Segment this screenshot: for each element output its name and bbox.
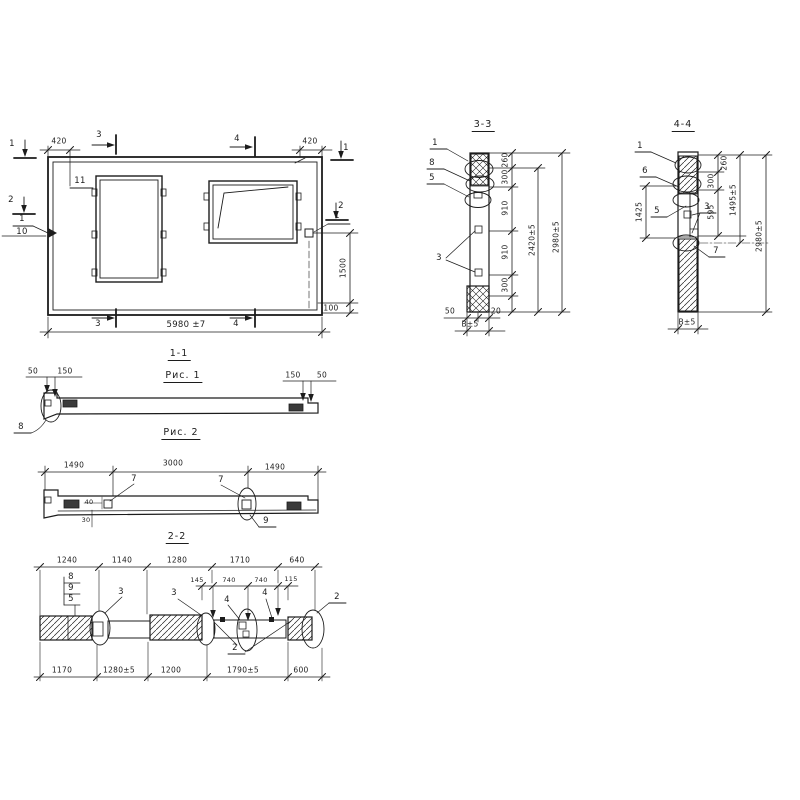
- f2-dim-1490-right: 1490: [265, 463, 285, 471]
- s33-dim-910-top: 910: [501, 200, 509, 215]
- s22-top-dim-1710: 1710: [230, 556, 250, 564]
- s11-dim-50-left: 50: [28, 367, 38, 375]
- f2-dim-40: 40: [85, 499, 94, 506]
- s22-label-4-right: 4: [262, 589, 268, 598]
- s44-dim-1495: 1495±5: [729, 184, 737, 216]
- section-1-1-view: [14, 377, 336, 433]
- s22-label-4-left: 4: [224, 596, 230, 605]
- dim-420-left: 420: [51, 137, 66, 145]
- s22-mid-dim-115: 115: [284, 576, 297, 583]
- s22-label-3-right: 3: [171, 589, 177, 598]
- s11-dim-150-right: 150: [285, 371, 300, 379]
- s11-dim-150-left: 150: [57, 367, 72, 375]
- s33-dim-300-bottom: 300: [501, 277, 509, 292]
- s22-mid-dim-145: 145: [190, 577, 203, 584]
- f2-label-7-right: 7: [218, 476, 224, 485]
- dim-overall-width: 5980 ±7: [167, 321, 206, 330]
- s22-top-dim-1280: 1280: [167, 556, 187, 564]
- s33-label-8: 8: [429, 159, 435, 168]
- s22-label-2-bottom: 2: [232, 644, 238, 653]
- section-1-1-title: 1-1: [168, 349, 191, 361]
- label-1-right: 1: [334, 212, 340, 221]
- figure-2-caption: Рис. 2: [161, 428, 200, 440]
- section-4-4-title: 4-4: [672, 120, 695, 132]
- label-1-numerator: 1: [19, 215, 25, 224]
- s22-mid-dim-740a: 740: [222, 577, 235, 584]
- section-marker-3-bottom: 3: [95, 320, 101, 329]
- s22-label-9: 9: [68, 584, 74, 593]
- dim-420-right: 420: [302, 137, 317, 145]
- s22-bottom-dim-1200: 1200: [161, 666, 181, 674]
- label-10-denominator: 10: [16, 228, 27, 237]
- label-11: 11: [74, 177, 85, 186]
- s44-dim-thickness: В±5: [678, 318, 695, 326]
- s44-dim-260: 260: [720, 155, 728, 170]
- s44-dim-1425: 1425: [635, 202, 643, 222]
- section-marker-3-top: 3: [96, 131, 102, 140]
- s22-bottom-dim-600: 600: [293, 666, 308, 674]
- s44-label-7: 7: [713, 247, 719, 256]
- dim-1500: 1500: [339, 258, 347, 278]
- s33-dim-2980: 2980±5: [552, 221, 560, 253]
- s33-dim-910-bottom: 910: [501, 244, 509, 259]
- s22-label-2-right: 2: [334, 593, 340, 602]
- s44-dim-300: 300: [707, 173, 715, 188]
- section-marker-2-right: 2: [338, 202, 344, 211]
- s22-top-dim-1140: 1140: [112, 556, 132, 564]
- s33-label-3: 3: [436, 254, 442, 263]
- s22-top-dim-640: 640: [289, 556, 304, 564]
- s22-bottom-dim-1280: 1280±5: [103, 666, 135, 674]
- s33-dim-300-top: 300: [501, 169, 509, 184]
- s44-dim-595: 595: [707, 204, 715, 219]
- s33-label-1: 1: [432, 139, 438, 148]
- drawing-sheet: 420 11 1 2 1 10 3 4 420 1 2 1 1500 100 5…: [0, 0, 800, 800]
- s22-bottom-dim-1170: 1170: [52, 666, 72, 674]
- section-marker-4-top: 4: [234, 135, 240, 144]
- s33-dim-20: 20: [491, 307, 501, 315]
- f2-dim-30: 30: [82, 517, 91, 524]
- s44-label-6: 6: [642, 167, 648, 176]
- f2-label-9: 9: [263, 517, 269, 526]
- s44-label-5: 5: [654, 207, 660, 216]
- s33-dim-2420: 2420±5: [528, 224, 536, 256]
- s11-dim-50-right: 50: [317, 371, 327, 379]
- dim-100: 100: [323, 304, 338, 312]
- f2-label-7-left: 7: [131, 475, 137, 484]
- s22-label-5: 5: [68, 595, 74, 604]
- main-elevation-view: [2, 135, 358, 338]
- f2-dim-1490-left: 1490: [64, 461, 84, 469]
- section-marker-2-left: 2: [8, 196, 14, 205]
- s22-mid-dim-740b: 740: [254, 577, 267, 584]
- s44-label-1: 1: [637, 142, 643, 151]
- s33-label-5: 5: [429, 174, 435, 183]
- section-4-4-view: [635, 152, 772, 335]
- s22-label-8: 8: [68, 573, 74, 582]
- section-marker-1-right: 1: [343, 144, 349, 153]
- s33-dim-thickness: В±5: [461, 320, 478, 328]
- section-2-2-title: 2-2: [166, 532, 189, 544]
- section-marker-4-bottom: 4: [233, 320, 239, 329]
- s33-dim-50: 50: [445, 307, 455, 315]
- s22-top-dim-1240: 1240: [57, 556, 77, 564]
- s22-bottom-dim-1790: 1790±5: [227, 666, 259, 674]
- section-marker-1-left: 1: [9, 140, 15, 149]
- s11-label-8: 8: [18, 423, 24, 432]
- s33-dim-260: 260: [501, 152, 509, 167]
- s44-dim-2980: 2980±5: [755, 220, 763, 252]
- f2-dim-3000: 3000: [163, 459, 183, 467]
- s22-label-3-left: 3: [118, 588, 124, 597]
- figure-1-caption: Рис. 1: [163, 371, 202, 383]
- section-3-3-title: 3-3: [472, 120, 495, 132]
